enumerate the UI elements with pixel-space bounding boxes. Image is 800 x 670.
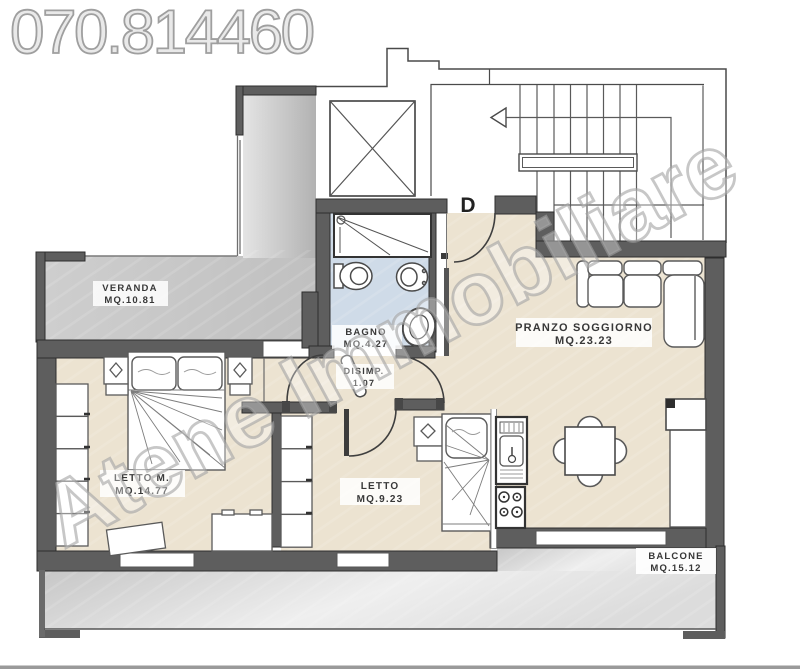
svg-text:PRANZO SOGGIORNO: PRANZO SOGGIORNO — [515, 322, 653, 334]
svg-text:MQ.9.23: MQ.9.23 — [357, 494, 404, 505]
svg-text:D: D — [460, 194, 475, 217]
svg-text:MQ.15.12: MQ.15.12 — [650, 563, 701, 574]
svg-text:070.814460: 070.814460 — [10, 0, 314, 67]
svg-text:MQ.10.81: MQ.10.81 — [104, 295, 155, 306]
svg-text:BALCONE: BALCONE — [648, 551, 703, 562]
svg-text:VERANDA: VERANDA — [102, 283, 157, 294]
svg-text:LETTO: LETTO — [361, 481, 400, 492]
svg-text:MQ.23.23: MQ.23.23 — [555, 335, 613, 347]
